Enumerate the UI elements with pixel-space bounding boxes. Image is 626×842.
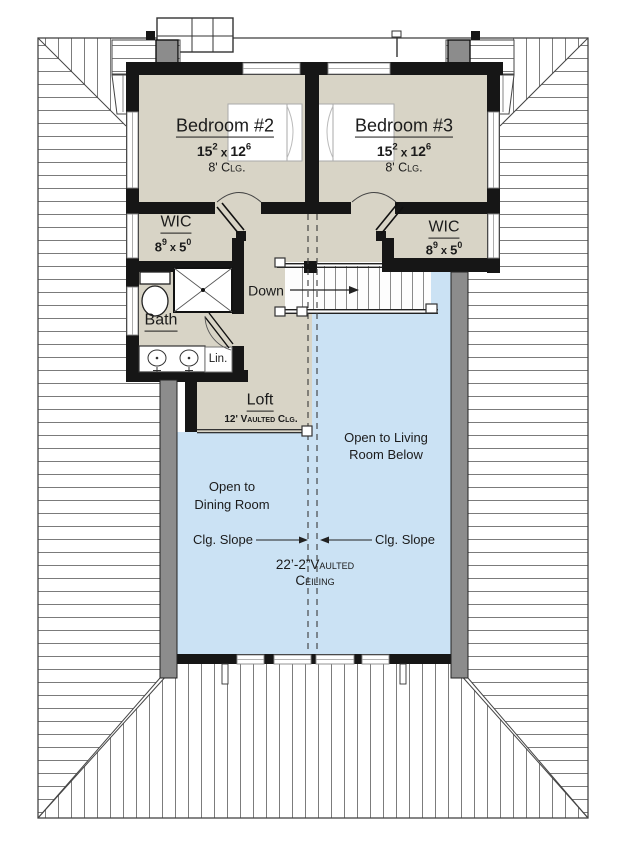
window (316, 655, 354, 664)
open-to-living-area (312, 262, 451, 655)
floor-plan-drawing (0, 0, 626, 842)
vanity-sinks (139, 346, 205, 373)
exterior-wall-left (160, 380, 177, 678)
window (488, 112, 499, 188)
window (328, 63, 390, 74)
window (488, 214, 499, 258)
window (127, 287, 138, 335)
window (274, 655, 311, 664)
open-to-dining-area (177, 432, 312, 655)
loft-floor (190, 376, 312, 432)
toilet (140, 272, 170, 316)
exterior-wall-right (451, 272, 468, 678)
window (243, 63, 300, 74)
roof-vent (392, 31, 401, 57)
window (237, 655, 264, 664)
shower (174, 268, 232, 312)
bedroom3-closet (318, 104, 394, 161)
window (127, 112, 138, 188)
window (127, 214, 138, 258)
linen-closet (205, 347, 232, 372)
window (362, 655, 389, 664)
bedroom2-closet (228, 104, 302, 161)
floorplan-page: Bedroom #2 152x126 8' Clg. Bedroom #3 15… (0, 0, 626, 842)
